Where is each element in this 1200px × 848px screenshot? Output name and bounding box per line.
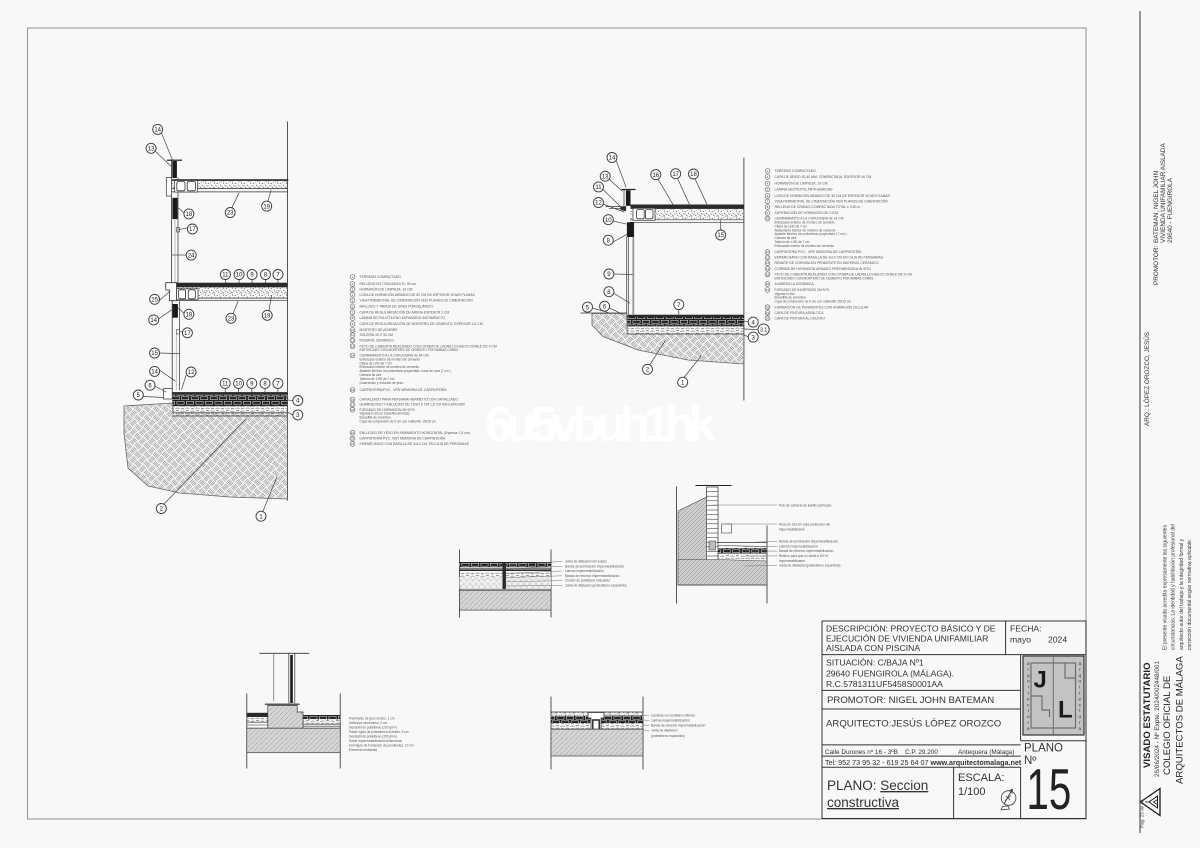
svg-text:23: 23 xyxy=(228,316,235,322)
svg-text:ENLUCIDO DE YESO EN PARAMENTO: ENLUCIDO DE YESO EN PARAMENTO HORIZONTAL… xyxy=(360,431,470,435)
svg-text:MALLAZO Y TABICA DE GRES PORCE: MALLAZO Y TABICA DE GRES PORCELÁNICO xyxy=(360,304,434,308)
svg-text:ENFOSCADO CON MORTERO DE CEMEN: ENFOSCADO CON MORTERO DE CEMENTO POR AMB… xyxy=(360,348,459,352)
svg-text:LÁMINA GEOTEXTIL ANTIHUMEDAD: LÁMINA GEOTEXTIL ANTIHUMEDAD xyxy=(775,188,833,192)
svg-text:10: 10 xyxy=(235,382,242,388)
svg-text:16: 16 xyxy=(351,398,355,402)
svg-text:impermeabilizante: impermeabilizante xyxy=(779,527,805,531)
svg-text:ARQUITECTO:JESÚS LÓPEZ OROZCO: ARQUITECTO:JESÚS LÓPEZ OROZCO xyxy=(826,719,1001,730)
svg-text:6u5vbuh1hk: 6u5vbuh1hk xyxy=(485,398,717,452)
svg-text:CAPIALZADO PARA PERSIANA HERMÉ: CAPIALZADO PARA PERSIANA HERMÉTICO EN CA… xyxy=(360,397,459,402)
svg-text:Lámina impermeabilización: Lámina impermeabilización xyxy=(779,544,818,548)
svg-text:19: 19 xyxy=(263,204,270,210)
svg-text:ALBARDILLA CERÁMICA: ALBARDILLA CERÁMICA xyxy=(775,282,815,286)
svg-text:Banda de terminación impermeab: Banda de terminación impermeabilización xyxy=(779,540,838,544)
svg-text:15: 15 xyxy=(1027,757,1072,822)
svg-text:arquitecto autor del trabajo y: arquitecto autor del trabajo y la integr… xyxy=(1179,538,1185,650)
svg-text:MORTERO DE AGARRE: MORTERO DE AGARRE xyxy=(360,328,399,332)
svg-text:GUARNECIDO Y ENLUCIDO DE YESO: GUARNECIDO Y ENLUCIDO DE YESO 6 CM 1,5 C… xyxy=(360,403,466,407)
svg-text:Capa de compresión de 5 cm con: Capa de compresión de 5 cm con malla ME … xyxy=(775,300,852,304)
svg-text:Banda de refuerzo impermeabili: Banda de refuerzo impermeabilización xyxy=(651,724,706,728)
svg-text:SUPERACIÓN DE HORMIGÓN DE COTA: SUPERACIÓN DE HORMIGÓN DE COTA xyxy=(775,210,840,215)
svg-text:11: 11 xyxy=(351,333,354,337)
svg-text:Cazoleta con sumidero sifónico: Cazoleta con sumidero sifónico xyxy=(651,714,696,718)
svg-text:19: 19 xyxy=(351,431,355,435)
svg-text:Hormigón de formación de pendi: Hormigón de formación de pendientes, 10 … xyxy=(349,744,414,748)
svg-text:Pag. 23 de 43: Pag. 23 de 43 xyxy=(1140,799,1145,828)
svg-text:Panel rígido de poliestireno e: Panel rígido de poliestireno extruido, 5… xyxy=(349,730,409,734)
svg-text:impermeabilizante: impermeabilizante xyxy=(779,559,805,563)
svg-text:16: 16 xyxy=(652,173,659,179)
svg-text:24: 24 xyxy=(188,253,195,259)
svg-text:17: 17 xyxy=(184,331,191,337)
svg-text:Lámina impermeabilización: Lámina impermeabilización xyxy=(565,569,604,573)
svg-text:Guarnecido y enlucido de yeso: Guarnecido y enlucido de yeso xyxy=(360,381,404,385)
svg-text:J: J xyxy=(1034,667,1047,694)
svg-text:10: 10 xyxy=(605,218,612,224)
svg-text:TERRENO COMPACTADO: TERRENO COMPACTADO xyxy=(775,169,817,173)
svg-text:PROMOTOR: NIGEL JOHN BATEMAN: PROMOTOR: NIGEL JOHN BATEMAN xyxy=(827,695,994,706)
svg-text:12: 12 xyxy=(595,201,602,207)
svg-text:Elemento resistente: Elemento resistente xyxy=(349,748,377,752)
svg-text:Relleno para que no doble a 90: Relleno para que no doble a 90º el xyxy=(779,554,828,558)
svg-text:11: 11 xyxy=(766,250,769,254)
svg-text:FECHA:: FECHA: xyxy=(1010,624,1042,634)
svg-text:(poliestireno expandido): (poliestireno expandido) xyxy=(651,734,685,738)
svg-text:Lámina impermeabilización: Lámina impermeabilización xyxy=(651,719,690,723)
svg-text:3.1: 3.1 xyxy=(760,327,767,333)
svg-text:18: 18 xyxy=(690,172,697,178)
svg-text:SITUACIÓN: C/BAJA Nº1: SITUACIÓN: C/BAJA Nº1 xyxy=(826,658,924,668)
svg-text:Enfoscado interior de mortero: Enfoscado interior de mortero de cemento xyxy=(775,244,835,248)
svg-text:13: 13 xyxy=(766,261,770,265)
svg-text:Banda de terminación impermeab: Banda de terminación impermeabilizacion xyxy=(565,564,624,568)
svg-text:BATEMAN, NIGEL JOHN: BATEMAN, NIGEL JOHN xyxy=(1153,171,1160,243)
svg-text:17: 17 xyxy=(766,288,770,292)
svg-text:PLANO: Seccion: PLANO: Seccion xyxy=(827,778,928,793)
svg-text:HORMIGÓN DE LIMPIEZA, 10 CM: HORMIGÓN DE LIMPIEZA, 10 CM xyxy=(360,286,413,291)
svg-text:13: 13 xyxy=(148,146,155,152)
svg-text:LOSA DE HORMIGÓN ARMADO DE 30: LOSA DE HORMIGÓN ARMADO DE 30 CM DE ESPE… xyxy=(775,193,891,198)
svg-text:VIGA PERIMETRAL DE CIMENTACIÓN: VIGA PERIMETRAL DE CIMENTACIÓN VER PLANO… xyxy=(775,199,889,204)
svg-text:ENFOSCADO CON MORTERO DE CEMEN: ENFOSCADO CON MORTERO DE CEMENTO POR AMB… xyxy=(775,276,874,280)
svg-text:EMPARCHADO CON RASILLA DE 4x14: EMPARCHADO CON RASILLA DE 4x14 CM, EN CA… xyxy=(360,442,470,446)
svg-text:14: 14 xyxy=(151,370,158,376)
svg-text:18: 18 xyxy=(186,212,193,218)
svg-text:18: 18 xyxy=(766,305,770,309)
svg-text:17: 17 xyxy=(672,172,679,178)
svg-text:CAPA DE ÁRIDO 30-40 MM, COMPAC: CAPA DE ÁRIDO 30-40 MM, COMPACTADA, ESPE… xyxy=(775,175,872,179)
svg-text:CORNISA DE HORMIGÓN ARMADO PRE: CORNISA DE HORMIGÓN ARMADO PREFABRICADA … xyxy=(775,266,872,271)
svg-text:PROMOTOR:: PROMOTOR: xyxy=(1153,245,1160,285)
svg-text:19: 19 xyxy=(766,311,770,315)
svg-text:14: 14 xyxy=(154,128,161,134)
svg-text:15: 15 xyxy=(351,388,355,392)
svg-text:DESCRIPCIÓN: PROYECTO BÁSICO Y: DESCRIPCIÓN: PROYECTO BÁSICO Y DE xyxy=(826,624,996,634)
svg-text:26/06/2024 - Nº Expte. 2024/00: 26/06/2024 - Nº Expte. 2024/002448/001 xyxy=(1154,661,1161,777)
svg-text:10: 10 xyxy=(236,273,243,279)
svg-text:PLANO: PLANO xyxy=(1024,743,1063,755)
svg-text:VIGA PERIMETRAL DE CIMENTACIÓN: VIGA PERIMETRAL DE CIMENTACIÓN VER PLANO… xyxy=(360,298,474,303)
svg-text:HORMIGÓN DE LIMPIEZA, 10 CM: HORMIGÓN DE LIMPIEZA, 10 CM xyxy=(775,181,828,186)
svg-text:1/100: 1/100 xyxy=(958,786,986,798)
svg-text:Junta de dilatación (poliestir: Junta de dilatación (poliestireno expand… xyxy=(565,584,627,588)
svg-text:17: 17 xyxy=(189,227,196,233)
svg-text:Junta de dilatación del solado: Junta de dilatación del solado xyxy=(565,560,607,564)
svg-text:CAPA DE PINTURA ASFÁLTICA: CAPA DE PINTURA ASFÁLTICA xyxy=(775,311,825,315)
svg-text:Cordón de polietileno reticula: Cordón de polietileno reticulado xyxy=(565,579,610,583)
svg-text:18: 18 xyxy=(186,312,193,318)
svg-text:Pelo de cabrería de ladrillo p: Pelo de cabrería de ladrillo perforado xyxy=(779,503,832,507)
svg-text:15: 15 xyxy=(151,351,158,357)
svg-text:15: 15 xyxy=(717,233,724,239)
svg-text:15: 15 xyxy=(766,272,770,276)
svg-text:Adhesivo cementoso, 2 cm: Adhesivo cementoso, 2 cm xyxy=(349,721,388,725)
svg-text:AISLADA CON PISCINA: AISLADA CON PISCINA xyxy=(826,643,920,653)
svg-text:18: 18 xyxy=(351,408,355,412)
svg-text:Doble impermeabilización bitum: Doble impermeabilización bituminosa xyxy=(349,739,402,743)
svg-text:LOSA DE HORMIGÓN ARMADO DE 50: LOSA DE HORMIGÓN ARMADO DE 50 CM DE ESPE… xyxy=(360,292,476,297)
svg-text:Pavimento de gres rústico, 1 c: Pavimento de gres rústico, 1 cm xyxy=(349,717,395,721)
svg-text:CAPA DE REGULARIZACIÓN DE AREN: CAPA DE REGULARIZACIÓN DE ARENA ESPESOR … xyxy=(360,309,450,314)
svg-text:CAPA DE REGULARIZACIÓN DE MORT: CAPA DE REGULARIZACIÓN DE MORTERO DE CEM… xyxy=(360,321,483,326)
svg-text:10: 10 xyxy=(766,217,770,221)
svg-text:CARPINTERÍA PVC - VER MEMORIA: CARPINTERÍA PVC - VER MEMORIA DE CARPINT… xyxy=(775,250,863,254)
svg-text:RODAPIÉ CERÁMICO: RODAPIÉ CERÁMICO xyxy=(360,338,395,343)
svg-text:12: 12 xyxy=(351,339,355,343)
svg-text:11: 11 xyxy=(222,382,229,388)
svg-text:14: 14 xyxy=(150,318,157,324)
svg-text:20: 20 xyxy=(766,316,770,320)
svg-text:12: 12 xyxy=(188,370,195,376)
svg-text:FORMACIÓN DE PENDIENTES CON HO: FORMACIÓN DE PENDIENTES CON HORMIGÓN CEL… xyxy=(775,304,870,309)
svg-text:17: 17 xyxy=(351,403,355,407)
svg-text:constructiva: constructiva xyxy=(827,795,900,810)
svg-text:29640 FUENGIROLA (MÁLAGA).: 29640 FUENGIROLA (MÁLAGA). xyxy=(826,669,954,679)
svg-text:LÁMINA DE POLIETILENO EXPANDID: LÁMINA DE POLIETILENO EXPANDIDO ANTIIMPA… xyxy=(360,316,446,320)
svg-text:CARPINTERÍA/PVC - VER MEMORIA: CARPINTERÍA/PVC - VER MEMORIA DE CARPINT… xyxy=(360,388,448,392)
svg-text:R.C.5781311UF5458S0001AA: R.C.5781311UF5458S0001AA xyxy=(826,679,943,689)
svg-text:11: 11 xyxy=(595,185,602,191)
svg-text:El presente visado acredita ex: El presente visado acredita expresamente… xyxy=(1163,524,1169,650)
svg-text:12: 12 xyxy=(766,256,770,260)
svg-text:CARPINTERÍA PVC: VER MEMORIA D: CARPINTERÍA PVC: VER MEMORIA DE CARPINTE… xyxy=(360,437,446,441)
svg-text:ARQUITECTOS DE MÁLAGA: ARQUITECTOS DE MÁLAGA xyxy=(1175,656,1186,784)
svg-text:25: 25 xyxy=(151,297,158,303)
svg-text:L: L xyxy=(1058,697,1073,724)
svg-text:Roza de 3x3 cm para protección: Roza de 3x3 cm para protección del xyxy=(779,522,830,526)
svg-text:13: 13 xyxy=(351,344,355,348)
svg-text:ARQ.: LÓPEZ OROZCO, JESÚS: ARQ.: LÓPEZ OROZCO, JESÚS xyxy=(1142,332,1151,426)
svg-text:EJECUCIÓN DE VIVIENDA UNIFAMIL: EJECUCIÓN DE VIVIENDA UNIFAMILIAR xyxy=(826,634,988,644)
svg-text:14: 14 xyxy=(766,267,770,271)
svg-text:Tel: 952 73 95 32 - 619 25 64: Tel: 952 73 95 32 - 619 25 64 07 www.arq… xyxy=(825,758,1022,767)
svg-text:16: 16 xyxy=(766,282,770,286)
svg-text:Capa de compresión de 5 cm con: Capa de compresión de 5 cm con malla ME … xyxy=(360,419,437,423)
svg-text:Geotextil de polietileno (150: Geotextil de polietileno (150 g/m²) xyxy=(349,735,397,739)
svg-text:ESCALA:: ESCALA: xyxy=(958,772,1004,784)
svg-text:circunstancias: La identidad y: circunstancias: La identidad y habilitac… xyxy=(1171,524,1177,650)
svg-text:Junta de dilatación: Junta de dilatación xyxy=(651,729,678,733)
svg-text:SOLERÍA 40 X 40 CM: SOLERÍA 40 X 40 CM xyxy=(360,333,394,337)
svg-text:21: 21 xyxy=(351,442,355,446)
svg-text:14: 14 xyxy=(351,354,355,358)
svg-text:COLEGIO OFICIAL DE: COLEGIO OFICIAL DE xyxy=(1162,676,1173,775)
svg-text:23: 23 xyxy=(227,211,234,217)
svg-text:29640 - FUENGIROLA: 29640 - FUENGIROLA xyxy=(1167,177,1174,243)
svg-text:Banda de refuerzo impermeabili: Banda de refuerzo impermeabilización xyxy=(565,574,620,578)
svg-text:13: 13 xyxy=(602,174,609,180)
svg-text:Calle Durones nº 16 - 3ºBC.P.: Calle Durones nº 16 - 3ºBC.P. 29.200Ante… xyxy=(825,749,1014,756)
svg-text:19: 19 xyxy=(264,313,271,319)
svg-text:Junta de dilatación (poliestir: Junta de dilatación (poliestireno expand… xyxy=(779,564,841,568)
svg-text:TERRENO COMPACTADO: TERRENO COMPACTADO xyxy=(360,275,402,279)
svg-text:corrección documental según no: corrección documental según normativa ap… xyxy=(1187,539,1193,650)
svg-text:Banda de refuerzo impermeabili: Banda de refuerzo impermeabilización xyxy=(779,549,834,553)
svg-text:RELLENO EN TONGADAS E= 50 cm: RELLENO EN TONGADAS E= 50 cm xyxy=(360,282,417,286)
svg-text:10: 10 xyxy=(351,328,355,332)
svg-text:Geotextil de polietileno (200: Geotextil de polietileno (200 g/m²) xyxy=(349,726,397,730)
svg-text:RELLENO DE GRAVAS COMPACTADA T: RELLENO DE GRAVAS COMPACTADA TOTAL ± 0,6… xyxy=(775,205,861,209)
svg-text:11: 11 xyxy=(222,273,229,279)
svg-text:CAPA DE PINTURA AL CAUCHO: CAPA DE PINTURA AL CAUCHO xyxy=(775,316,826,320)
svg-text:20: 20 xyxy=(351,437,355,441)
svg-text:VIVIENDA UNIFAMILIAR AISLADA: VIVIENDA UNIFAMILIAR AISLADA xyxy=(1160,142,1167,243)
svg-text:REMATE DE CORNISA EN PENDIENTE: REMATE DE CORNISA EN PENDIENTE EN MATERI… xyxy=(775,261,879,265)
svg-text:14: 14 xyxy=(609,156,616,162)
svg-text:EMPARCHADO CON RASILLA DE 4x14: EMPARCHADO CON RASILLA DE 4x14 CM EN CAJ… xyxy=(775,256,884,260)
svg-text:VISADO ESTATUTARIO: VISADO ESTATUTARIO xyxy=(1142,662,1153,768)
